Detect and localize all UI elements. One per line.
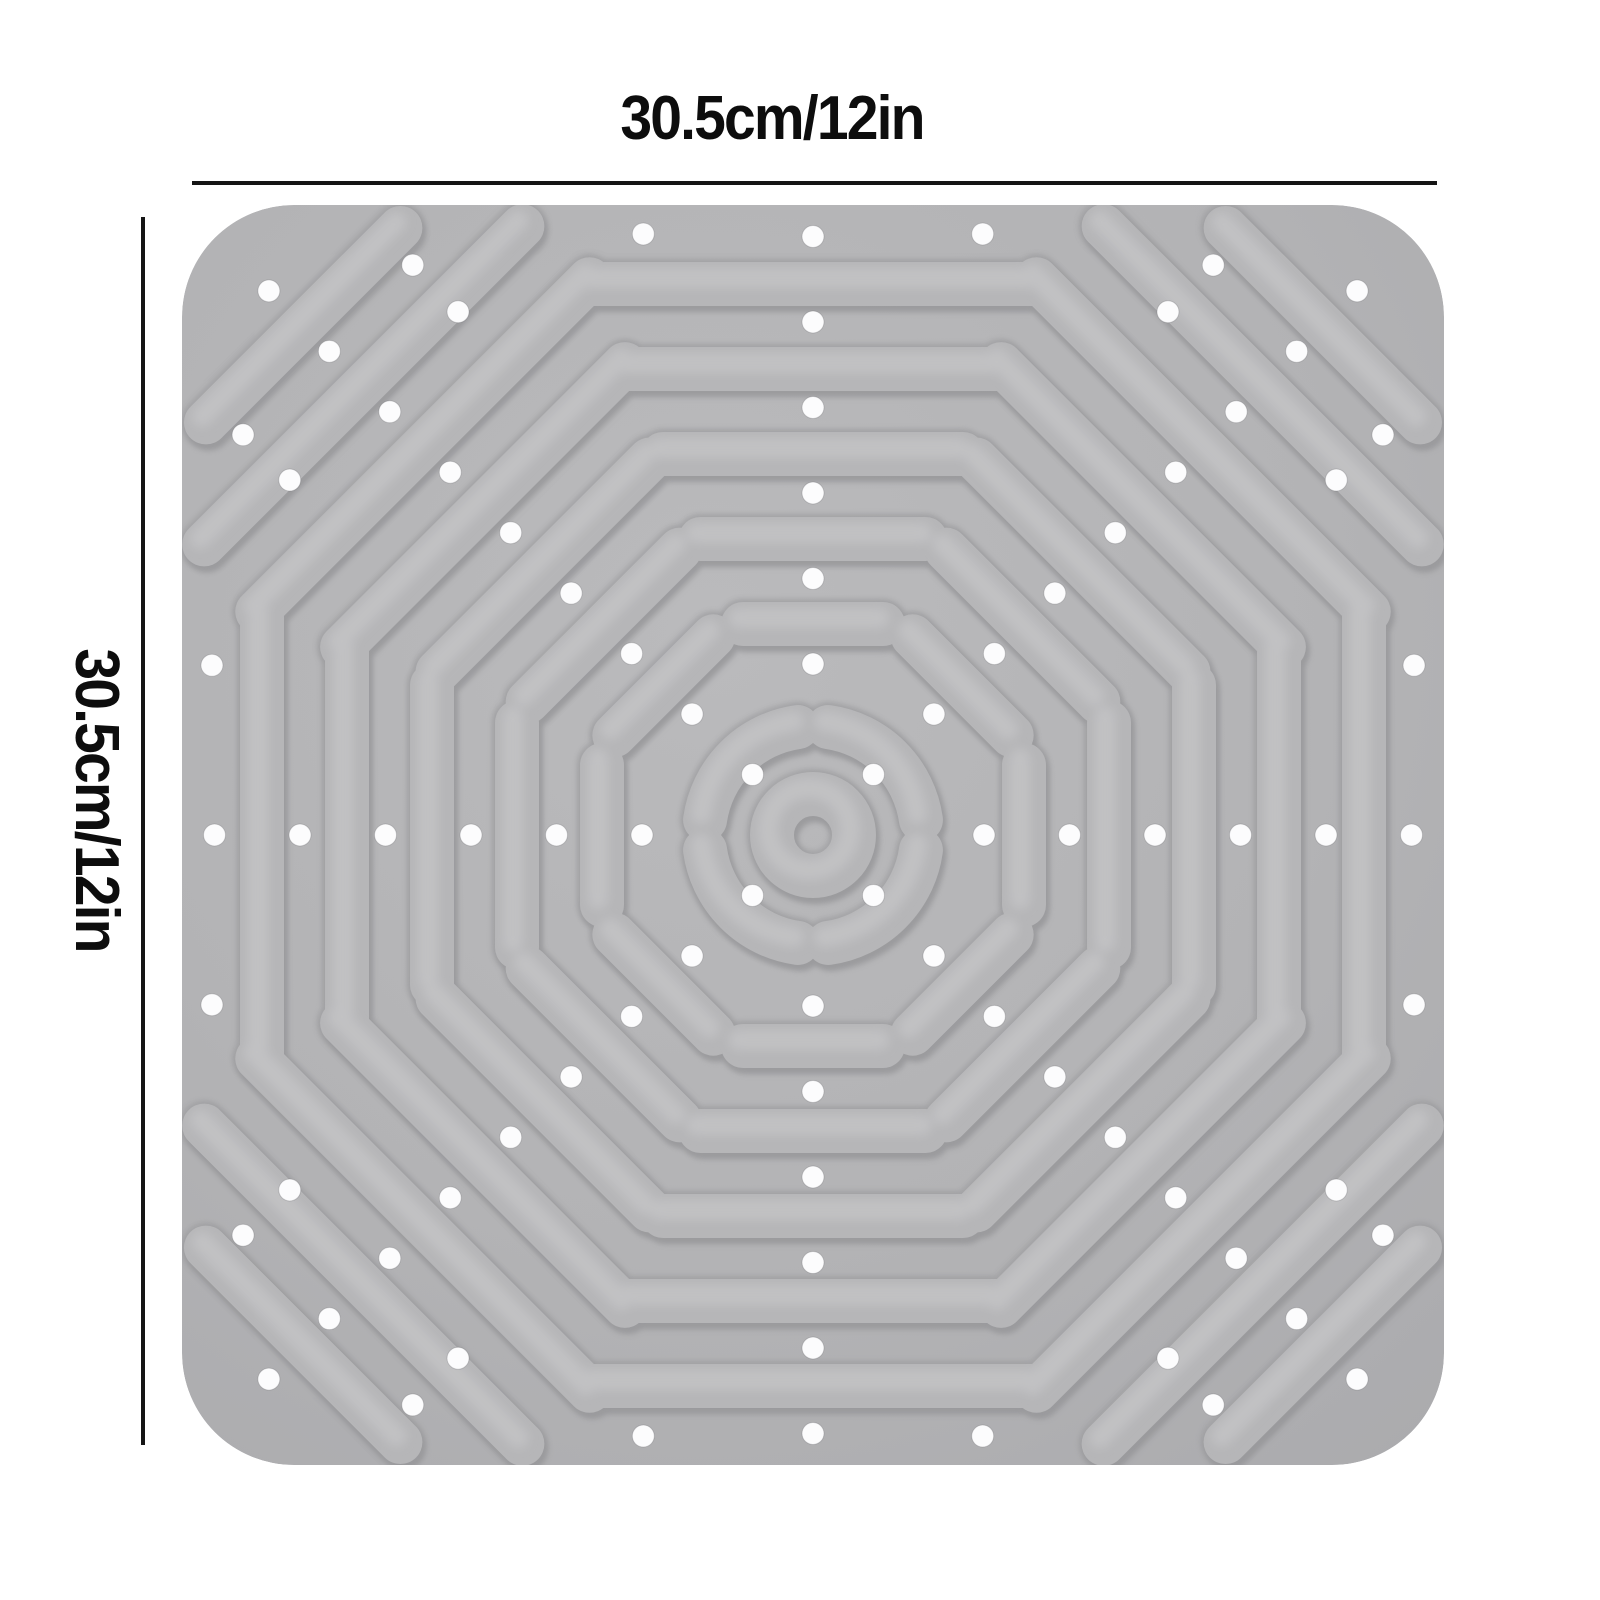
height-dimension-label: 30.5cm/12in [65,648,127,951]
drain-hole [1202,254,1224,276]
drain-hole [447,301,469,323]
drain-hole [1202,1394,1224,1416]
drain-hole [439,461,461,483]
drain-hole [375,824,397,846]
drain-hole [1315,824,1337,846]
drain-hole [279,469,301,491]
drain-hole [972,223,994,245]
drain-hole [402,1394,424,1416]
drain-hole [923,945,945,967]
drain-hole [379,1247,401,1269]
drain-hole [1104,522,1126,544]
drain-hole [802,482,824,504]
drain-hole [279,1179,301,1201]
drain-hole [560,1066,582,1088]
drain-hole [1325,1179,1347,1201]
width-dimension-label: 30.5cm/12in [620,88,923,150]
drain-hole [802,1252,824,1274]
drain-hole [1230,824,1252,846]
drain-hole [631,824,653,846]
drain-hole [1403,994,1425,1016]
drain-hole [201,654,223,676]
drain-hole [632,1425,654,1447]
drain-hole [681,945,703,967]
drain-hole [862,884,884,906]
drain-hole [1144,824,1166,846]
drain-hole [379,401,401,423]
drain-hole [802,1423,824,1445]
drain-hole [204,824,226,846]
drain-hole [802,226,824,248]
drain-hole [1286,1308,1308,1330]
drain-hole [742,884,764,906]
drain-hole [1104,1126,1126,1148]
drain-hole [1372,1224,1394,1246]
drain-hole [983,1005,1005,1027]
drain-hole [232,1224,254,1246]
drain-hole [402,254,424,276]
drain-hole [802,568,824,590]
drain-hole [621,1005,643,1027]
drain-hole [500,522,522,544]
drain-hole [1325,469,1347,491]
sink-mat-illustration [0,0,1600,1600]
drain-hole [923,703,945,725]
drain-hole [1157,1347,1179,1369]
drain-hole [1059,824,1081,846]
drain-hole [318,1308,340,1330]
drain-hole [439,1187,461,1209]
drain-hole [621,643,643,665]
drain-hole [1401,824,1423,846]
drain-hole [1225,1247,1247,1269]
drain-hole [802,653,824,675]
drain-hole [258,1368,280,1390]
drain-hole [802,311,824,333]
drain-hole [460,824,482,846]
drain-hole [802,995,824,1017]
drain-hole [560,582,582,604]
drain-hole [318,340,340,362]
drain-hole [862,764,884,786]
drain-hole [447,1347,469,1369]
drain-hole [232,424,254,446]
drain-hole [258,280,280,302]
drain-hole [742,764,764,786]
drain-hole [1157,301,1179,323]
drain-hole [1372,424,1394,446]
sink-mat [182,205,1444,1465]
drain-hole [1346,280,1368,302]
drain-hole [802,1166,824,1188]
product-dimension-diagram: 30.5cm/12in 30.5cm/12in [0,0,1600,1600]
drain-hole [1403,654,1425,676]
drain-hole [1225,401,1247,423]
drain-hole [1044,1066,1066,1088]
drain-hole [289,824,311,846]
drain-hole [632,223,654,245]
drain-hole [972,1425,994,1447]
drain-hole [802,1337,824,1359]
drain-hole [1286,340,1308,362]
drain-hole [1165,461,1187,483]
drain-hole [802,1081,824,1103]
drain-hole [1346,1368,1368,1390]
drain-hole [983,643,1005,665]
drain-hole [802,397,824,419]
drain-hole [201,994,223,1016]
drain-hole [681,703,703,725]
drain-hole [546,824,568,846]
drain-hole [500,1126,522,1148]
drain-hole [1165,1187,1187,1209]
drain-hole [973,824,995,846]
drain-hole [1044,582,1066,604]
